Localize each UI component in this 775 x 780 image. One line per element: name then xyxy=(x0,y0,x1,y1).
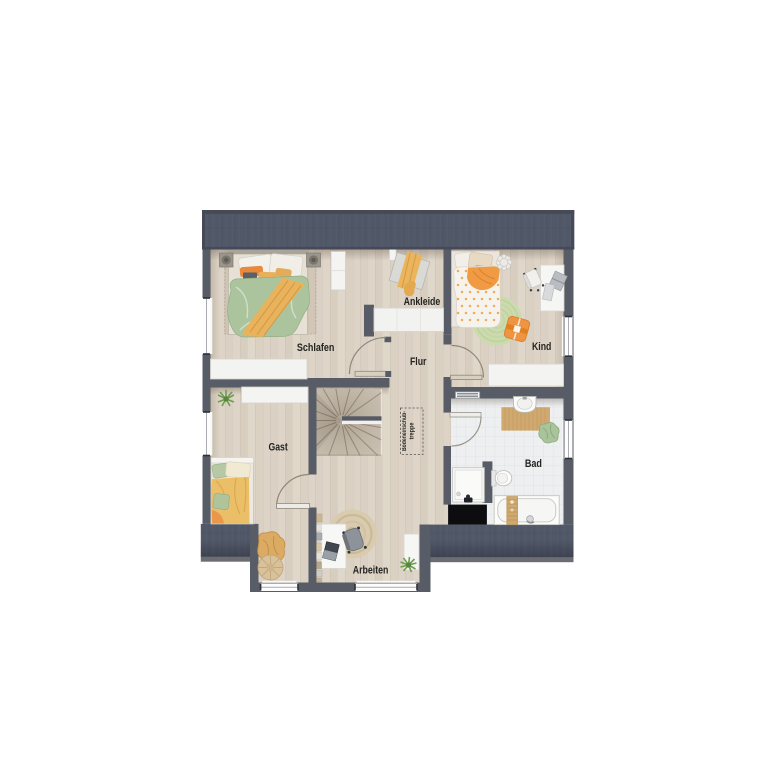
svg-text:Schlafen: Schlafen xyxy=(297,342,335,354)
svg-text:Kind: Kind xyxy=(532,341,551,353)
svg-text:Bodeneinschub-: Bodeneinschub- xyxy=(402,411,408,451)
svg-text:Bad: Bad xyxy=(525,458,542,470)
svg-text:Arbeiten: Arbeiten xyxy=(353,565,389,577)
svg-text:Gast: Gast xyxy=(268,442,288,454)
svg-text:Flur: Flur xyxy=(410,356,427,368)
svg-text:Ankleide: Ankleide xyxy=(404,296,441,308)
svg-text:treppe: treppe xyxy=(410,422,416,440)
